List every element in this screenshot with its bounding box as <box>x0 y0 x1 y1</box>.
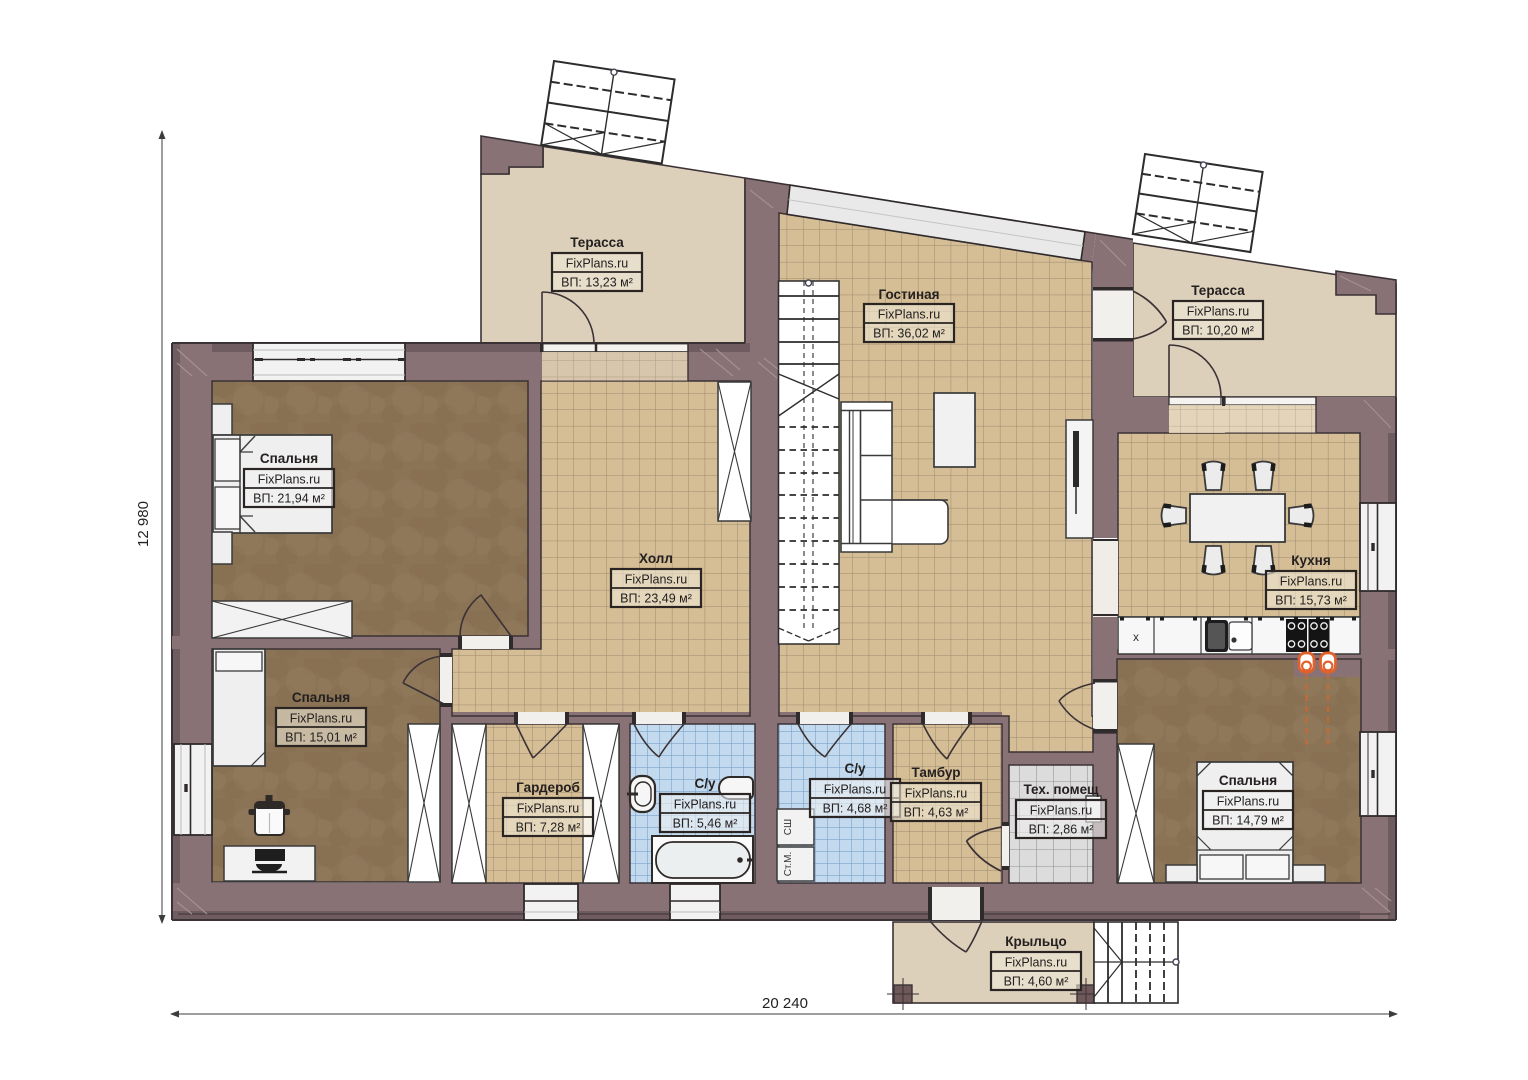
svg-text:FixPlans.ru: FixPlans.ru <box>1280 575 1343 589</box>
svg-text:Ст.М.: Ст.М. <box>783 852 794 877</box>
svg-text:FixPlans.ru: FixPlans.ru <box>1217 795 1280 809</box>
svg-text:FixPlans.ru: FixPlans.ru <box>905 787 968 801</box>
svg-text:С/у: С/у <box>694 776 716 791</box>
svg-text:20 240: 20 240 <box>762 995 808 1012</box>
svg-text:ВП: 14,79 м²: ВП: 14,79 м² <box>1212 814 1284 828</box>
svg-text:С/у: С/у <box>844 761 866 776</box>
svg-text:ВП: 4,60 м²: ВП: 4,60 м² <box>1004 975 1069 989</box>
svg-text:ВП: 13,23 м²: ВП: 13,23 м² <box>561 276 633 290</box>
svg-text:FixPlans.ru: FixPlans.ru <box>290 712 353 726</box>
svg-text:x: x <box>1133 630 1139 644</box>
svg-text:ВП: 21,94 м²: ВП: 21,94 м² <box>253 492 325 506</box>
svg-text:ВП: 7,28 м²: ВП: 7,28 м² <box>516 821 581 835</box>
svg-text:Спальня: Спальня <box>260 451 318 466</box>
svg-text:Тамбур: Тамбур <box>912 765 961 780</box>
svg-text:ВП: 15,01 м²: ВП: 15,01 м² <box>285 731 357 745</box>
svg-text:СШ: СШ <box>783 819 794 835</box>
svg-text:FixPlans.ru: FixPlans.ru <box>258 473 321 487</box>
svg-text:Спальня: Спальня <box>292 690 350 705</box>
svg-text:Крыльцо: Крыльцо <box>1005 934 1066 949</box>
svg-text:ВП: 2,86 м²: ВП: 2,86 м² <box>1029 823 1094 837</box>
svg-text:FixPlans.ru: FixPlans.ru <box>1187 305 1250 319</box>
svg-text:ВП: 5,46 м²: ВП: 5,46 м² <box>673 817 738 831</box>
svg-text:ВП: 23,49 м²: ВП: 23,49 м² <box>620 592 692 606</box>
svg-text:Спальня: Спальня <box>1219 773 1277 788</box>
svg-text:Терасса: Терасса <box>1191 283 1245 298</box>
svg-text:FixPlans.ru: FixPlans.ru <box>1005 956 1068 970</box>
svg-text:FixPlans.ru: FixPlans.ru <box>1030 804 1093 818</box>
svg-text:ВП: 36,02 м²: ВП: 36,02 м² <box>873 327 945 341</box>
svg-text:Гардероб: Гардероб <box>516 780 580 795</box>
svg-text:ВП: 4,68 м²: ВП: 4,68 м² <box>823 802 888 816</box>
svg-text:FixPlans.ru: FixPlans.ru <box>625 573 688 587</box>
svg-text:Тех. помещ: Тех. помещ <box>1023 782 1099 797</box>
svg-text:FixPlans.ru: FixPlans.ru <box>878 308 941 322</box>
svg-text:Терасса: Терасса <box>570 235 624 250</box>
svg-text:ВП: 10,20 м²: ВП: 10,20 м² <box>1182 324 1254 338</box>
svg-text:FixPlans.ru: FixPlans.ru <box>517 802 580 816</box>
svg-text:ВП: 4,63 м²: ВП: 4,63 м² <box>904 806 969 820</box>
svg-text:Холл: Холл <box>639 551 673 566</box>
svg-text:Гостиная: Гостиная <box>878 287 939 302</box>
svg-text:FixPlans.ru: FixPlans.ru <box>674 798 737 812</box>
svg-text:Кухня: Кухня <box>1291 553 1330 568</box>
svg-text:FixPlans.ru: FixPlans.ru <box>566 257 629 271</box>
svg-text:12 980: 12 980 <box>135 501 152 547</box>
svg-text:ВП: 15,73 м²: ВП: 15,73 м² <box>1275 594 1347 608</box>
svg-text:FixPlans.ru: FixPlans.ru <box>824 783 887 797</box>
